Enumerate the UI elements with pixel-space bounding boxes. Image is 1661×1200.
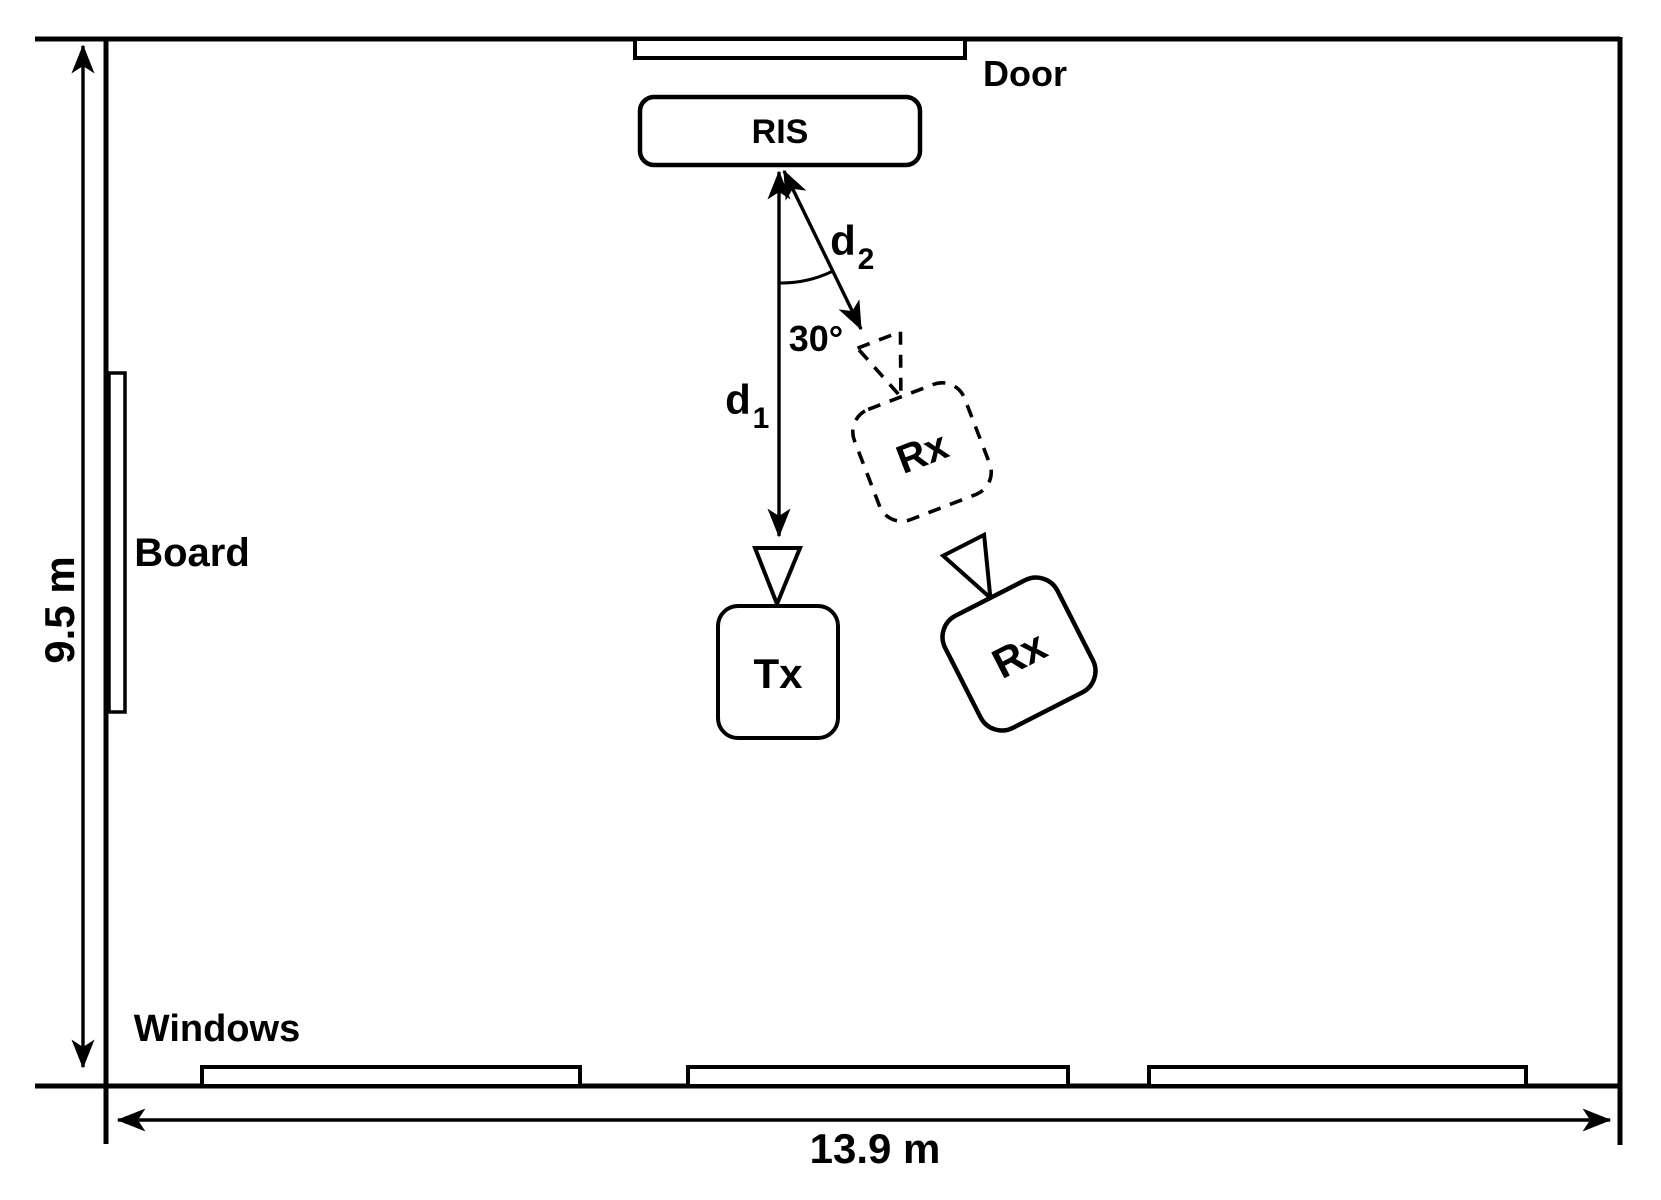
distance1-label: d — [725, 376, 751, 423]
tx-label: Tx — [753, 650, 803, 697]
angle-arc — [780, 271, 833, 283]
tx-antenna-icon — [755, 548, 800, 604]
height-dimension-label: 9.5 m — [36, 556, 83, 663]
rx-dashed-group: Rx — [824, 319, 998, 528]
rx-solid-group: Rx — [907, 517, 1103, 739]
window-3-shape — [1149, 1067, 1526, 1086]
angle-label: 30° — [789, 318, 843, 359]
windows-label: Windows — [134, 1008, 300, 1050]
floorplan-figure: Door Windows Board RIS d 1 d 2 30° Tx Rx… — [0, 0, 1661, 1200]
board-shape — [109, 373, 125, 712]
ris-label: RIS — [752, 113, 809, 151]
door-label: Door — [983, 53, 1067, 94]
board-label: Board — [134, 531, 250, 575]
width-dimension-label: 13.9 m — [810, 1125, 941, 1172]
distance1-subscript: 1 — [753, 402, 770, 435]
window-2-shape — [688, 1067, 1068, 1086]
floorplan-svg: Door Windows Board RIS d 1 d 2 30° Tx Rx… — [0, 0, 1661, 1200]
door-shape — [635, 39, 965, 58]
distance2-subscript: 2 — [858, 243, 875, 276]
distance2-label: d — [830, 217, 856, 264]
window-1-shape — [202, 1067, 580, 1086]
